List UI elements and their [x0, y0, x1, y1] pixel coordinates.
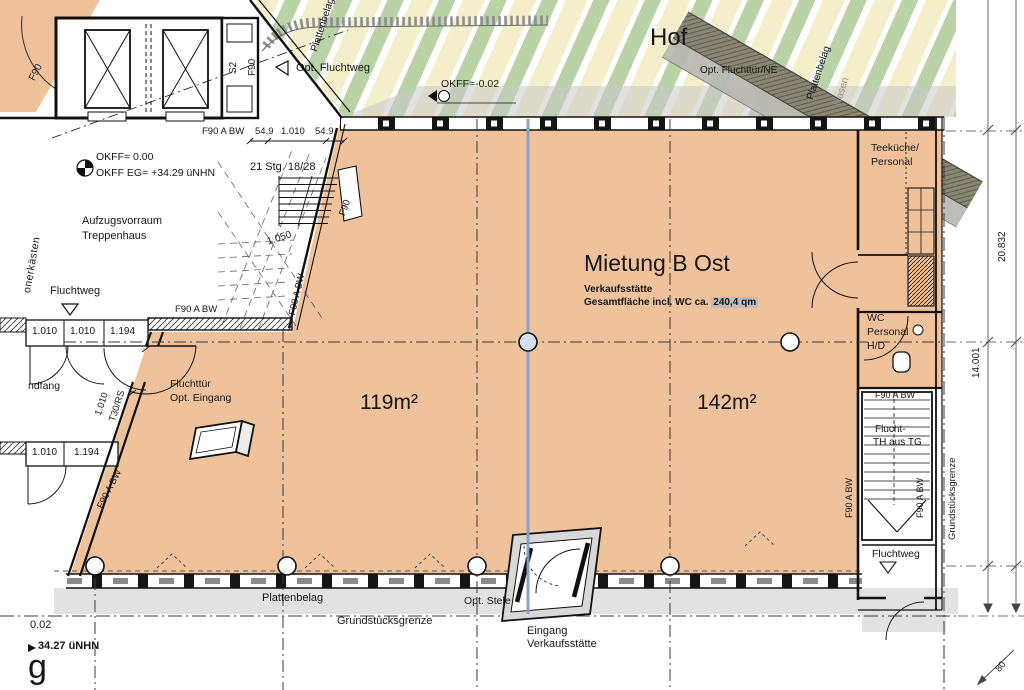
dim-549a: 54.9: [255, 127, 274, 137]
dim-549b: 54.9: [315, 127, 334, 137]
teekueche-label: Teeküche/: [871, 143, 919, 154]
okff-hof-label: OKFF=-0.02: [441, 79, 499, 90]
fluchttuer-label: Fluchttür: [170, 379, 211, 390]
dim-20832-label: 20.832: [998, 231, 1008, 262]
hof-title: Hof: [650, 26, 687, 50]
eingang-verkauf-label: Verkaufsstätte: [527, 639, 597, 650]
dim-row2-a: 1.010: [32, 448, 57, 458]
grenze-vertical-label: Grundstücksgrenze: [948, 458, 958, 540]
desk: [190, 421, 254, 459]
opt-fluchtweg-label: Opt. Fluchtweg: [296, 63, 370, 74]
stairs-count-label: 21 Stg. 18/28: [250, 162, 315, 173]
escape-direction-icon: [276, 61, 288, 75]
tenant-area: [70, 120, 858, 576]
level-3427-label: 34.27 üNHN: [38, 641, 99, 652]
dim-row1-c: 1.194: [110, 327, 135, 337]
wc-personal-label: Personal: [867, 327, 908, 338]
dim-1010-top: 1.010: [281, 127, 305, 137]
grenze-bottom-label: Grundstücksgrenze: [337, 616, 432, 627]
plan-letter-g: g: [28, 650, 47, 684]
dim-row2-b: 1.194: [74, 448, 99, 458]
escape-direction-icon-left: [62, 304, 78, 315]
f90abw-v-left-label: F90 A BW: [845, 478, 854, 518]
wc-label: WC: [867, 313, 885, 324]
tenant-use-label: Verkaufsstätte: [584, 285, 652, 295]
f90-b-label: F90: [248, 59, 258, 76]
teekueche-personal-label: Personal: [871, 157, 912, 168]
opt-stele-label: Opt. Stele: [464, 596, 511, 607]
tenant-area-value: 240,4 qm: [711, 297, 758, 308]
windfang-label: ndfang: [28, 381, 60, 392]
tenant-title: Mietung B Ost: [584, 252, 730, 275]
toilet: [893, 352, 910, 372]
sink: [913, 325, 923, 335]
f90abw-strip-top-label: F90 A BW: [875, 391, 915, 400]
shaft-hatched: [908, 256, 934, 306]
fluchtweg-right-label: Fluchtweg: [872, 549, 920, 560]
level-002-label: 0.02: [30, 620, 51, 631]
aufzugsvorraum-label: Aufzugsvorraum: [82, 216, 162, 227]
flucht-th-label1: Flucht-: [875, 425, 906, 435]
tenant-area-text: Gesamtfläche incl. WC ca.: [584, 297, 709, 308]
dim-row1-b: 1.010: [70, 327, 95, 337]
dim-14001-label: 14.001: [972, 347, 982, 378]
treppenhaus-label: Treppenhaus: [82, 231, 146, 242]
plattenbelag-bottom-label: Plattenbelag: [262, 593, 323, 604]
f90abw-dim-label: F90 A BW: [202, 127, 244, 137]
dimension-margin: [946, 0, 1024, 684]
opt-eingang-label: Opt. Eingang: [170, 393, 231, 404]
hof-paving-band: [342, 86, 956, 117]
area-left-label: 119m²: [360, 392, 418, 413]
dim-row1-a: 1.010: [32, 327, 57, 337]
escape-direction-icon-right: [880, 562, 896, 573]
okff-eg-label: OKFF EG= +34.29 üNHN: [96, 168, 215, 179]
wc-hd-label: H/D: [867, 341, 885, 352]
flucht-th-label2: TH aus TG: [873, 438, 922, 448]
s2-label: S2: [229, 62, 239, 74]
opt-fluchttuer-ne-label: Opt. Fluchttür/NE: [700, 66, 777, 76]
area-right-label: 142m²: [697, 392, 757, 413]
entrance-vestibule: [502, 528, 601, 621]
okff-zero-label: OKFF= 0.00: [96, 152, 153, 163]
floorplan: Hof Opt. Fluchtweg OKFF=-0.02 Opt. Fluch…: [0, 0, 1024, 690]
f90abw-v-right-label: F90 A BW: [916, 478, 925, 518]
f90abw-wall-label: F90 A BW: [175, 305, 217, 315]
fluchtweg-left-label: Fluchtweg: [50, 286, 100, 297]
wall-hatched: [148, 318, 292, 330]
eingang-label: Eingang: [527, 626, 567, 637]
tenant-area-label: Gesamtfläche incl. WC ca. 240,4 qm: [584, 298, 758, 308]
